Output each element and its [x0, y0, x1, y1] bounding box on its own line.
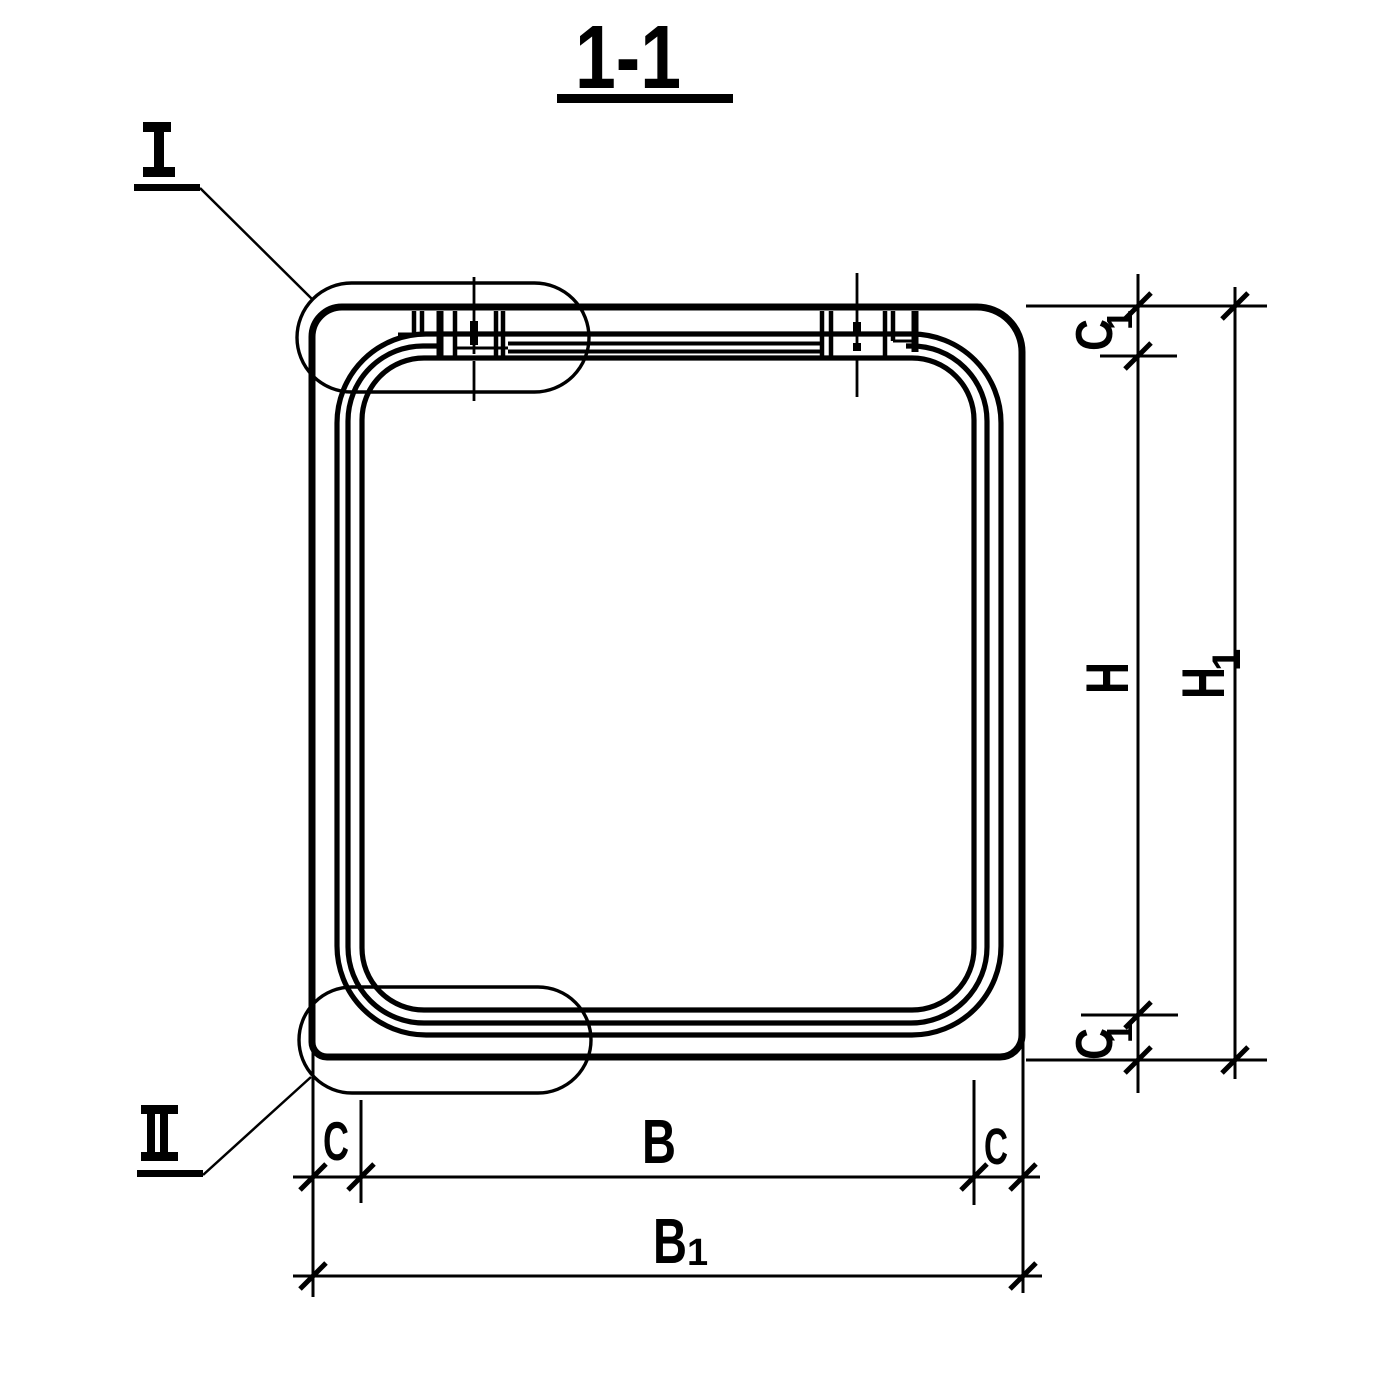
svg-text:B: B: [642, 1108, 676, 1177]
svg-text:1: 1: [1099, 310, 1140, 330]
svg-text:C: C: [323, 1110, 349, 1172]
svg-text:B: B: [653, 1205, 687, 1277]
svg-text:1: 1: [1205, 649, 1249, 671]
svg-text:C: C: [984, 1118, 1008, 1175]
svg-text:1: 1: [687, 1232, 708, 1274]
svg-text:1-1: 1-1: [575, 8, 681, 108]
svg-text:1: 1: [1099, 1023, 1140, 1043]
svg-text:H: H: [1074, 662, 1141, 694]
